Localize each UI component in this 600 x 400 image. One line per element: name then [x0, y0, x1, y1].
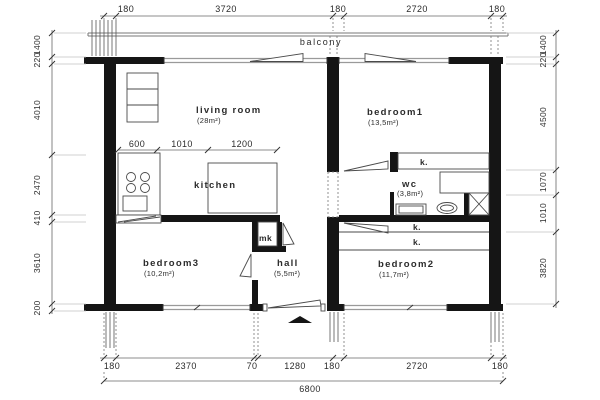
dim-bottom-3: 1280: [284, 361, 306, 371]
door-bedroom3: [240, 254, 251, 277]
dim-top-0: 180: [118, 4, 134, 14]
bedroom1-closet: [398, 153, 489, 169]
living-room-label: living room: [196, 105, 262, 116]
dim-left-6: 200: [32, 300, 42, 315]
dim-left-1: 220: [32, 52, 42, 67]
entrance-arrow-icon: [288, 316, 312, 323]
wall-center-lower: [327, 217, 339, 311]
balcony-left-hatch: [92, 20, 116, 56]
worktop-section: [116, 215, 161, 223]
dim-kitchen-1: 1010: [171, 139, 193, 149]
dim-chain-left: 1400 220 4010 2470 410 3610 200: [32, 30, 86, 316]
door-entrance: [268, 300, 321, 308]
floor-plan-drawing: balcony: [0, 0, 600, 400]
door-jamb-left: [263, 304, 267, 311]
dim-kitchen-2: 1200: [231, 139, 253, 149]
door-mk: [283, 223, 294, 245]
dim-total-width: 6800: [101, 372, 506, 394]
dim-right-1: 220: [538, 52, 548, 67]
window-sill-living: [250, 54, 303, 62]
wall-shaft-jamb: [464, 192, 469, 216]
bedroom2-label: bedroom2: [378, 259, 434, 270]
wall-wc-bottom: [339, 215, 489, 222]
k-label-bedroom1: k.: [420, 157, 428, 167]
dim-top-3: 2720: [406, 4, 428, 14]
wall-center-upper: [327, 57, 339, 172]
balcony: balcony: [88, 20, 508, 56]
bedroom2-area: (11,7m²): [379, 270, 409, 279]
wall-left: [104, 57, 116, 311]
dim-right-2: 4500: [538, 107, 548, 127]
kitchen-sink-icon: [123, 196, 147, 211]
dim-left-4: 410: [32, 210, 42, 225]
k-label-bedroom2: k.: [413, 237, 421, 247]
kitchen-label: kitchen: [194, 180, 236, 191]
dim-right-0: 1400: [538, 35, 548, 55]
dim-chain-top: 180 3720 180 2720 180: [100, 4, 507, 31]
wc-sink-icon: [396, 204, 426, 215]
dim-bottom-4: 180: [324, 361, 340, 371]
dim-left-3: 2470: [32, 175, 42, 195]
wall-bottom-left: [84, 304, 163, 311]
mk-label: mk: [259, 233, 272, 243]
dim-chain-right: 1400 220 4500 1070 1010 3820: [506, 30, 559, 308]
dim-total-label: 6800: [299, 384, 321, 394]
wall-bottom-right: [447, 304, 503, 311]
shower-area: [440, 172, 489, 193]
dim-right-4: 1010: [538, 203, 548, 223]
wall-wc-stub: [390, 192, 394, 218]
dim-chain-kitchen: 600 1010 1200: [115, 139, 280, 153]
wc-area: (3,8m²): [397, 189, 423, 198]
dim-left-5: 3610: [32, 253, 42, 273]
wall-mk-bottom: [252, 246, 286, 252]
bedroom1-label: bedroom1: [367, 107, 423, 118]
bedroom1-area: (13,5m²): [368, 118, 399, 127]
balcony-label: balcony: [300, 37, 342, 47]
window-sill-bedroom1: [365, 54, 416, 62]
dim-top-4: 180: [489, 4, 505, 14]
dim-left-2: 4010: [32, 100, 42, 120]
k-label-corridor: k.: [413, 222, 421, 232]
dim-bottom-1: 2370: [175, 361, 197, 371]
dim-top-1: 3720: [215, 4, 237, 14]
wall-mk-left: [252, 222, 258, 248]
hall-label: hall: [277, 258, 299, 269]
bedroom3-area: (10,2m²): [144, 269, 175, 278]
below-wall-hatches: [106, 312, 499, 348]
wall-right: [489, 57, 501, 311]
wall-bottom-center: [327, 304, 344, 311]
wall-hall-bedroom3: [252, 280, 258, 304]
dim-bottom-5: 2720: [406, 361, 428, 371]
living-room-area: (28m²): [197, 116, 221, 125]
toilet-icon: [437, 203, 457, 214]
dim-right-3: 1070: [538, 172, 548, 192]
door-jamb-right: [321, 304, 325, 311]
wall-closet-pier: [390, 152, 398, 172]
wall-top-left: [84, 57, 164, 64]
dim-bottom-6: 180: [492, 361, 508, 371]
shaft-x-icon: [469, 193, 489, 215]
dim-top-2: 180: [330, 4, 346, 14]
opening-living-hall: [328, 172, 338, 217]
dim-left-0: 1400: [32, 35, 42, 55]
dim-bottom-0: 180: [104, 361, 120, 371]
door-wc-upper: [344, 161, 388, 171]
dim-right-5: 3820: [538, 258, 548, 278]
dim-bottom-2: 70: [247, 361, 258, 371]
bedroom3-label: bedroom3: [143, 258, 199, 269]
door-wc-lower: [344, 223, 388, 233]
wardrobe: [127, 73, 158, 122]
dim-kitchen-0: 600: [129, 139, 145, 149]
hall-area: (5,5m²): [274, 269, 300, 278]
